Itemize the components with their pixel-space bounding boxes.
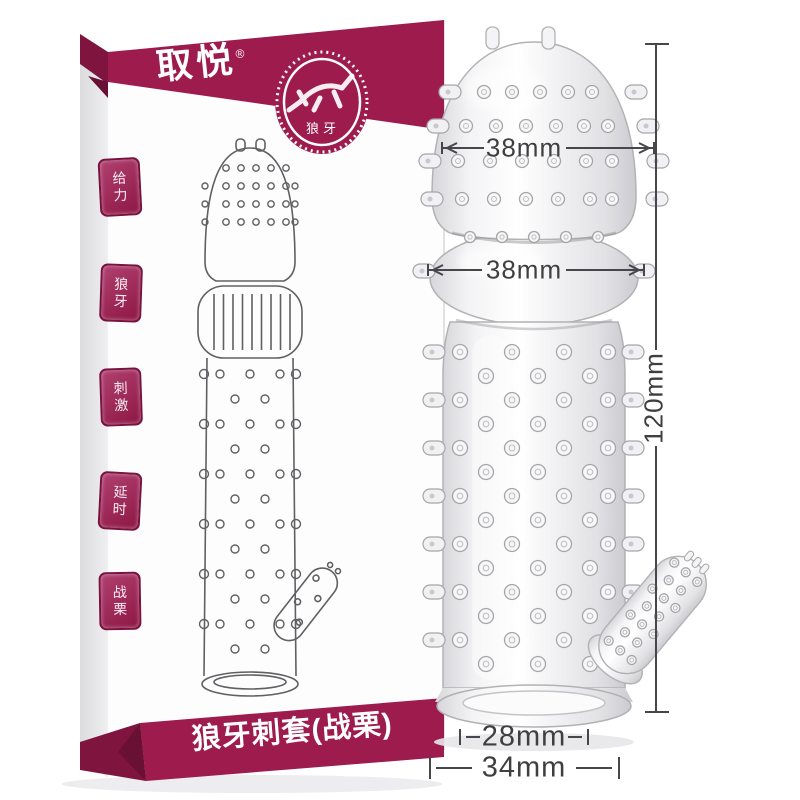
product-photo — [413, 27, 725, 751]
box-side-panel — [80, 34, 108, 778]
head-horn — [486, 27, 499, 49]
head-highlight — [465, 68, 545, 112]
package-box — [62, 20, 444, 793]
dim-outer-diameter-line — [430, 757, 619, 779]
product-bulge — [430, 231, 638, 325]
product-showcase: 取悦® 狼牙 给力 狼牙 刺激 延时 战栗 狼牙刺套(战栗) 38mm 38mm… — [0, 0, 800, 800]
box-shadow — [62, 775, 442, 793]
wolf-stamp — [275, 50, 369, 154]
stamp-background — [275, 50, 369, 154]
product-head — [432, 42, 636, 240]
scene-graphics — [0, 0, 800, 800]
shaft-highlight — [472, 335, 510, 680]
bulge-highlight — [458, 247, 542, 277]
product-base-ring — [435, 685, 633, 727]
box-front-panel — [108, 20, 444, 778]
product-shadow — [434, 733, 634, 751]
head-horn — [542, 27, 555, 49]
